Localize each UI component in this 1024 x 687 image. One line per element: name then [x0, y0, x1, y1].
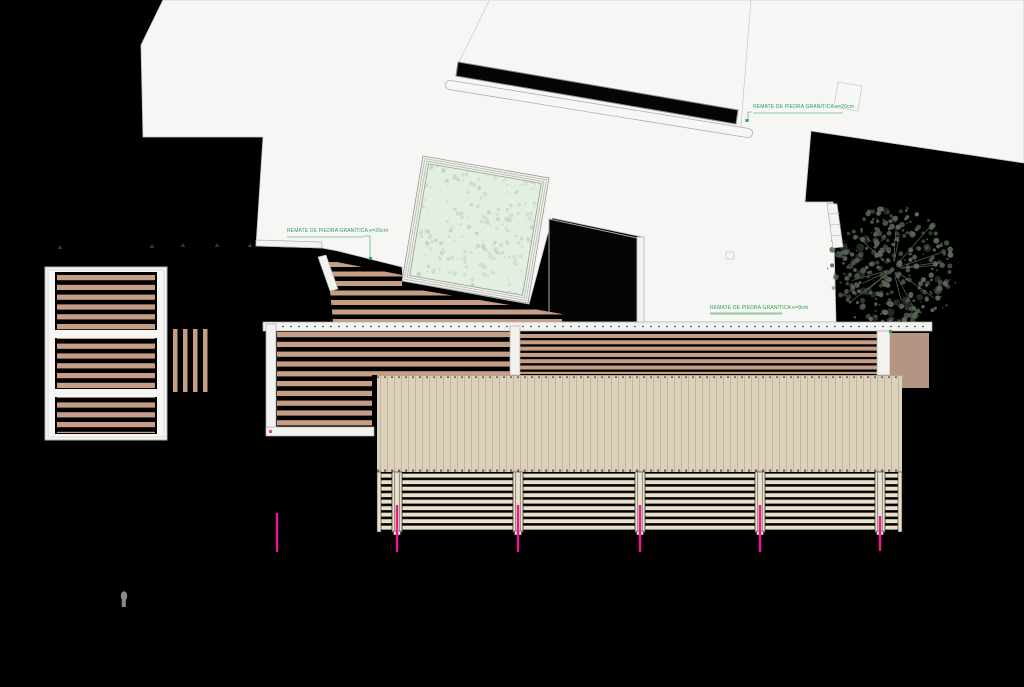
annotation-stone-edge-2: REMATE DE PIEDRA GRANÍTICA e=20cm	[287, 229, 388, 234]
site-plan-drawing	[0, 0, 1024, 687]
left-deck	[57, 273, 155, 437]
annotation-stone-edge-1: REMATE DE PIEDRA GRANÍTICA e=20cm	[753, 105, 854, 110]
annotation-stone-edge-3: REMATE DE PIEDRA GRANÍTICA e=8cm	[710, 306, 808, 311]
roof	[377, 375, 902, 472]
site-plan-canvas: REMATE DE PIEDRA GRANÍTICA e=20cm REMATE…	[0, 0, 1024, 687]
pool	[402, 156, 549, 303]
right-deck	[520, 332, 877, 376]
